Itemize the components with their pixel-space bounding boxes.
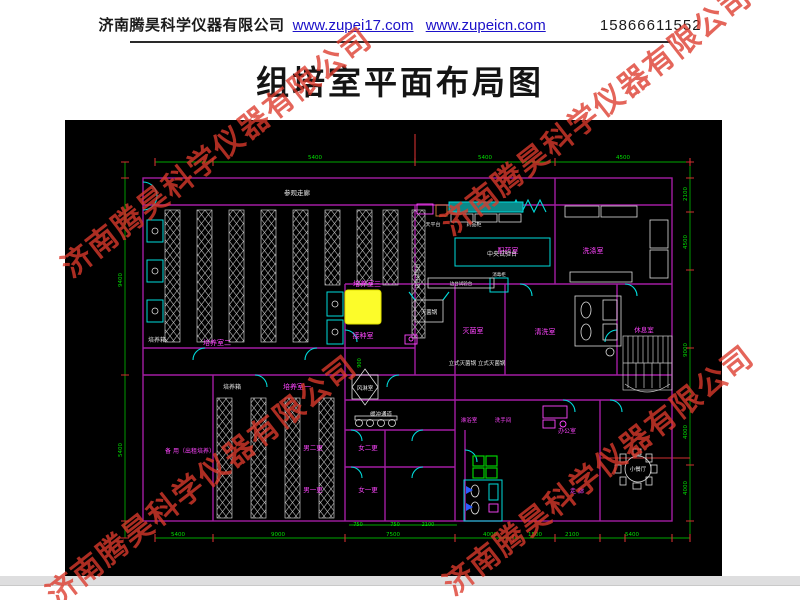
floorplan-svg: 参观走廊培养室三培养室二培养箱培养室一培养箱接种室灭菌锅灭菌室立式灭菌锅 立式灭… bbox=[65, 120, 722, 576]
room-label: 立式灭菌锅 立式灭菌锅 bbox=[449, 359, 506, 367]
room-label: 灭菌室 bbox=[463, 326, 484, 335]
dimension-label: 750 bbox=[353, 522, 363, 528]
dimension-label: 750 bbox=[390, 522, 400, 528]
wc-markers bbox=[466, 486, 473, 511]
room-label: 办公室 bbox=[558, 427, 576, 435]
room-label: 培养室二 bbox=[203, 338, 231, 347]
dimension-label: 4000 bbox=[483, 532, 497, 538]
room-label: 清洗室 bbox=[535, 327, 556, 336]
room-label: 女一更 bbox=[358, 485, 378, 494]
header-divider bbox=[130, 41, 670, 43]
room-label: 走 廊 bbox=[570, 487, 584, 495]
room-label: 灭菌锅 bbox=[421, 308, 438, 316]
page-title: 组培室平面布局图 bbox=[0, 56, 800, 104]
highlight-box[interactable] bbox=[345, 290, 381, 324]
room-label: 女二更 bbox=[358, 443, 378, 452]
room-label: 接种室 bbox=[353, 331, 374, 340]
floorplan-canvas: 参观走廊培养室三培养室二培养箱培养室一培养箱接种室灭菌锅灭菌室立式灭菌锅 立式灭… bbox=[65, 120, 722, 576]
room-label: 男二更 bbox=[303, 444, 323, 452]
room-label: 培养箱 bbox=[223, 383, 241, 391]
balance-box bbox=[436, 205, 447, 216]
room-label: 风淋室 bbox=[357, 384, 374, 392]
staircase bbox=[623, 336, 672, 392]
dimension-label: 4000 bbox=[683, 481, 689, 495]
link-zupeicn[interactable]: www.zupeicn.com bbox=[426, 17, 546, 34]
phone-number: 15866611552 bbox=[600, 17, 702, 34]
room-label: 培养箱 bbox=[148, 336, 166, 344]
room-label: 药品柜 bbox=[466, 221, 481, 228]
room-label: 备 用（出租培养） bbox=[165, 447, 215, 455]
room-label: 培养室一 bbox=[283, 382, 311, 391]
room-label: 培养室三 bbox=[353, 279, 381, 288]
dimension-label: 2100 bbox=[422, 522, 435, 528]
room-label: 男一更 bbox=[303, 486, 323, 494]
room-label: 消毒柜 bbox=[492, 271, 506, 278]
dimension-label: 4500 bbox=[616, 155, 630, 161]
dimension-label: 5400 bbox=[308, 155, 322, 161]
company-name: 济南腾昊科学仪器有限公司 bbox=[98, 17, 284, 34]
shelving-racks bbox=[165, 210, 425, 518]
dimension-label: 5400 bbox=[478, 155, 492, 161]
dimension-label: 7500 bbox=[386, 532, 400, 538]
dimension-label: 4000 bbox=[683, 425, 689, 439]
dimension-label: 5400 bbox=[625, 532, 639, 538]
room-label: 边台试验台 bbox=[414, 263, 421, 288]
bottom-strip bbox=[0, 576, 800, 586]
dimension-label: 4500 bbox=[683, 235, 689, 249]
dimension-label: 9400 bbox=[118, 273, 124, 287]
header: 济南腾昊科学仪器有限公司 www.zupei17.com www.zupeicn… bbox=[0, 14, 800, 35]
dimension-label: 900 bbox=[357, 358, 363, 368]
link-zupei17[interactable]: www.zupei17.com bbox=[293, 17, 414, 34]
room-label: 淋浴室 bbox=[461, 416, 478, 424]
dimension-label: 5400 bbox=[118, 443, 124, 457]
dimension-label: 5400 bbox=[171, 532, 185, 538]
dimension-label: 9000 bbox=[683, 343, 689, 357]
room-label: 洗涤室 bbox=[583, 246, 604, 255]
room-label: 天平台 bbox=[425, 221, 440, 228]
room-label: 洗手间 bbox=[495, 416, 512, 424]
room-label: 参观走廊 bbox=[284, 188, 311, 197]
room-label: 边台试验台 bbox=[450, 280, 473, 287]
page: 济南腾昊科学仪器有限公司 www.zupei17.com www.zupeicn… bbox=[0, 0, 800, 600]
dimension-label: 2100 bbox=[683, 187, 689, 201]
dimension-label: 2100 bbox=[565, 532, 579, 538]
room-label: 缓冲通道 bbox=[370, 410, 393, 418]
room-label: 休息室 bbox=[634, 325, 654, 334]
room-label: 中央试验台 bbox=[487, 250, 517, 258]
dimension-label: 9000 bbox=[271, 532, 285, 538]
room-label: 小餐厅 bbox=[630, 465, 647, 473]
dimension-label: 1500 bbox=[528, 532, 542, 538]
